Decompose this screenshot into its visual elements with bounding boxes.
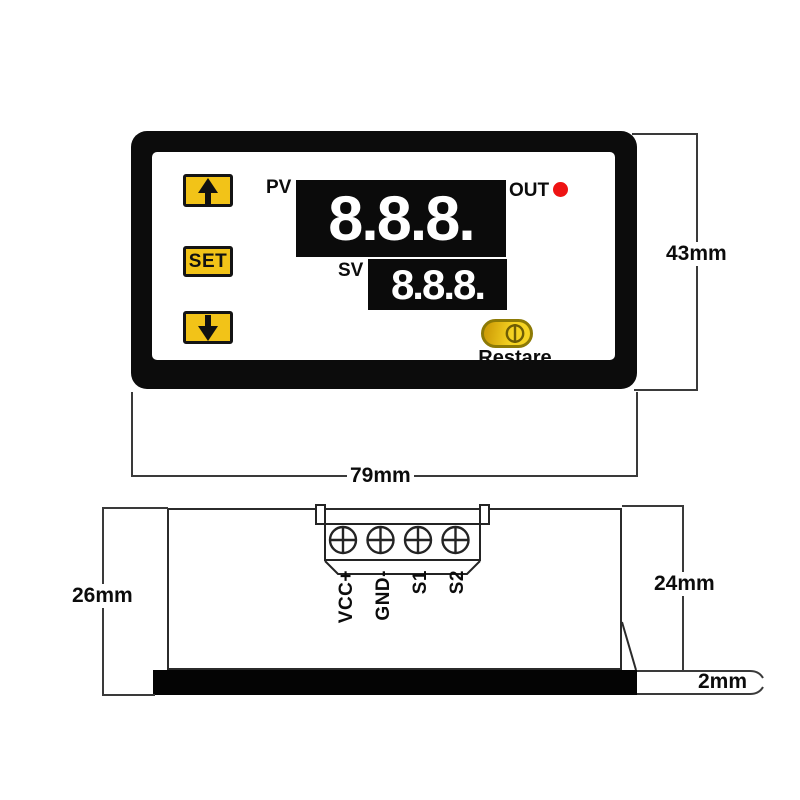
terminal-label-vcc: VCC+: [336, 570, 358, 650]
mounting-clip-line: [622, 622, 636, 670]
screw-terminal-2: [368, 527, 394, 553]
terminal-label-s1: S1: [410, 570, 432, 650]
screw-terminals: [330, 527, 469, 553]
dim-26mm-label: 26mm: [69, 584, 136, 608]
screw-terminal-3: [405, 527, 431, 553]
screw-terminal-1: [330, 527, 356, 553]
dim-2mm-label: 2mm: [695, 671, 750, 693]
terminal-label-s2: S2: [447, 570, 469, 650]
product-dimension-diagram: SET PV 8.8.8. OUT SV 8.8.8. Restare 43mm…: [0, 0, 800, 800]
rear-view-drawing: [0, 0, 800, 800]
screw-terminal-4: [443, 527, 469, 553]
dim-24mm-tick-top: [622, 505, 684, 507]
dim-26mm-tick-bottom: [102, 694, 155, 696]
terminal-label-gnd: GND-: [373, 570, 395, 650]
dim-24mm-label: 24mm: [651, 572, 718, 596]
dim-26mm-tick-top: [102, 507, 168, 509]
